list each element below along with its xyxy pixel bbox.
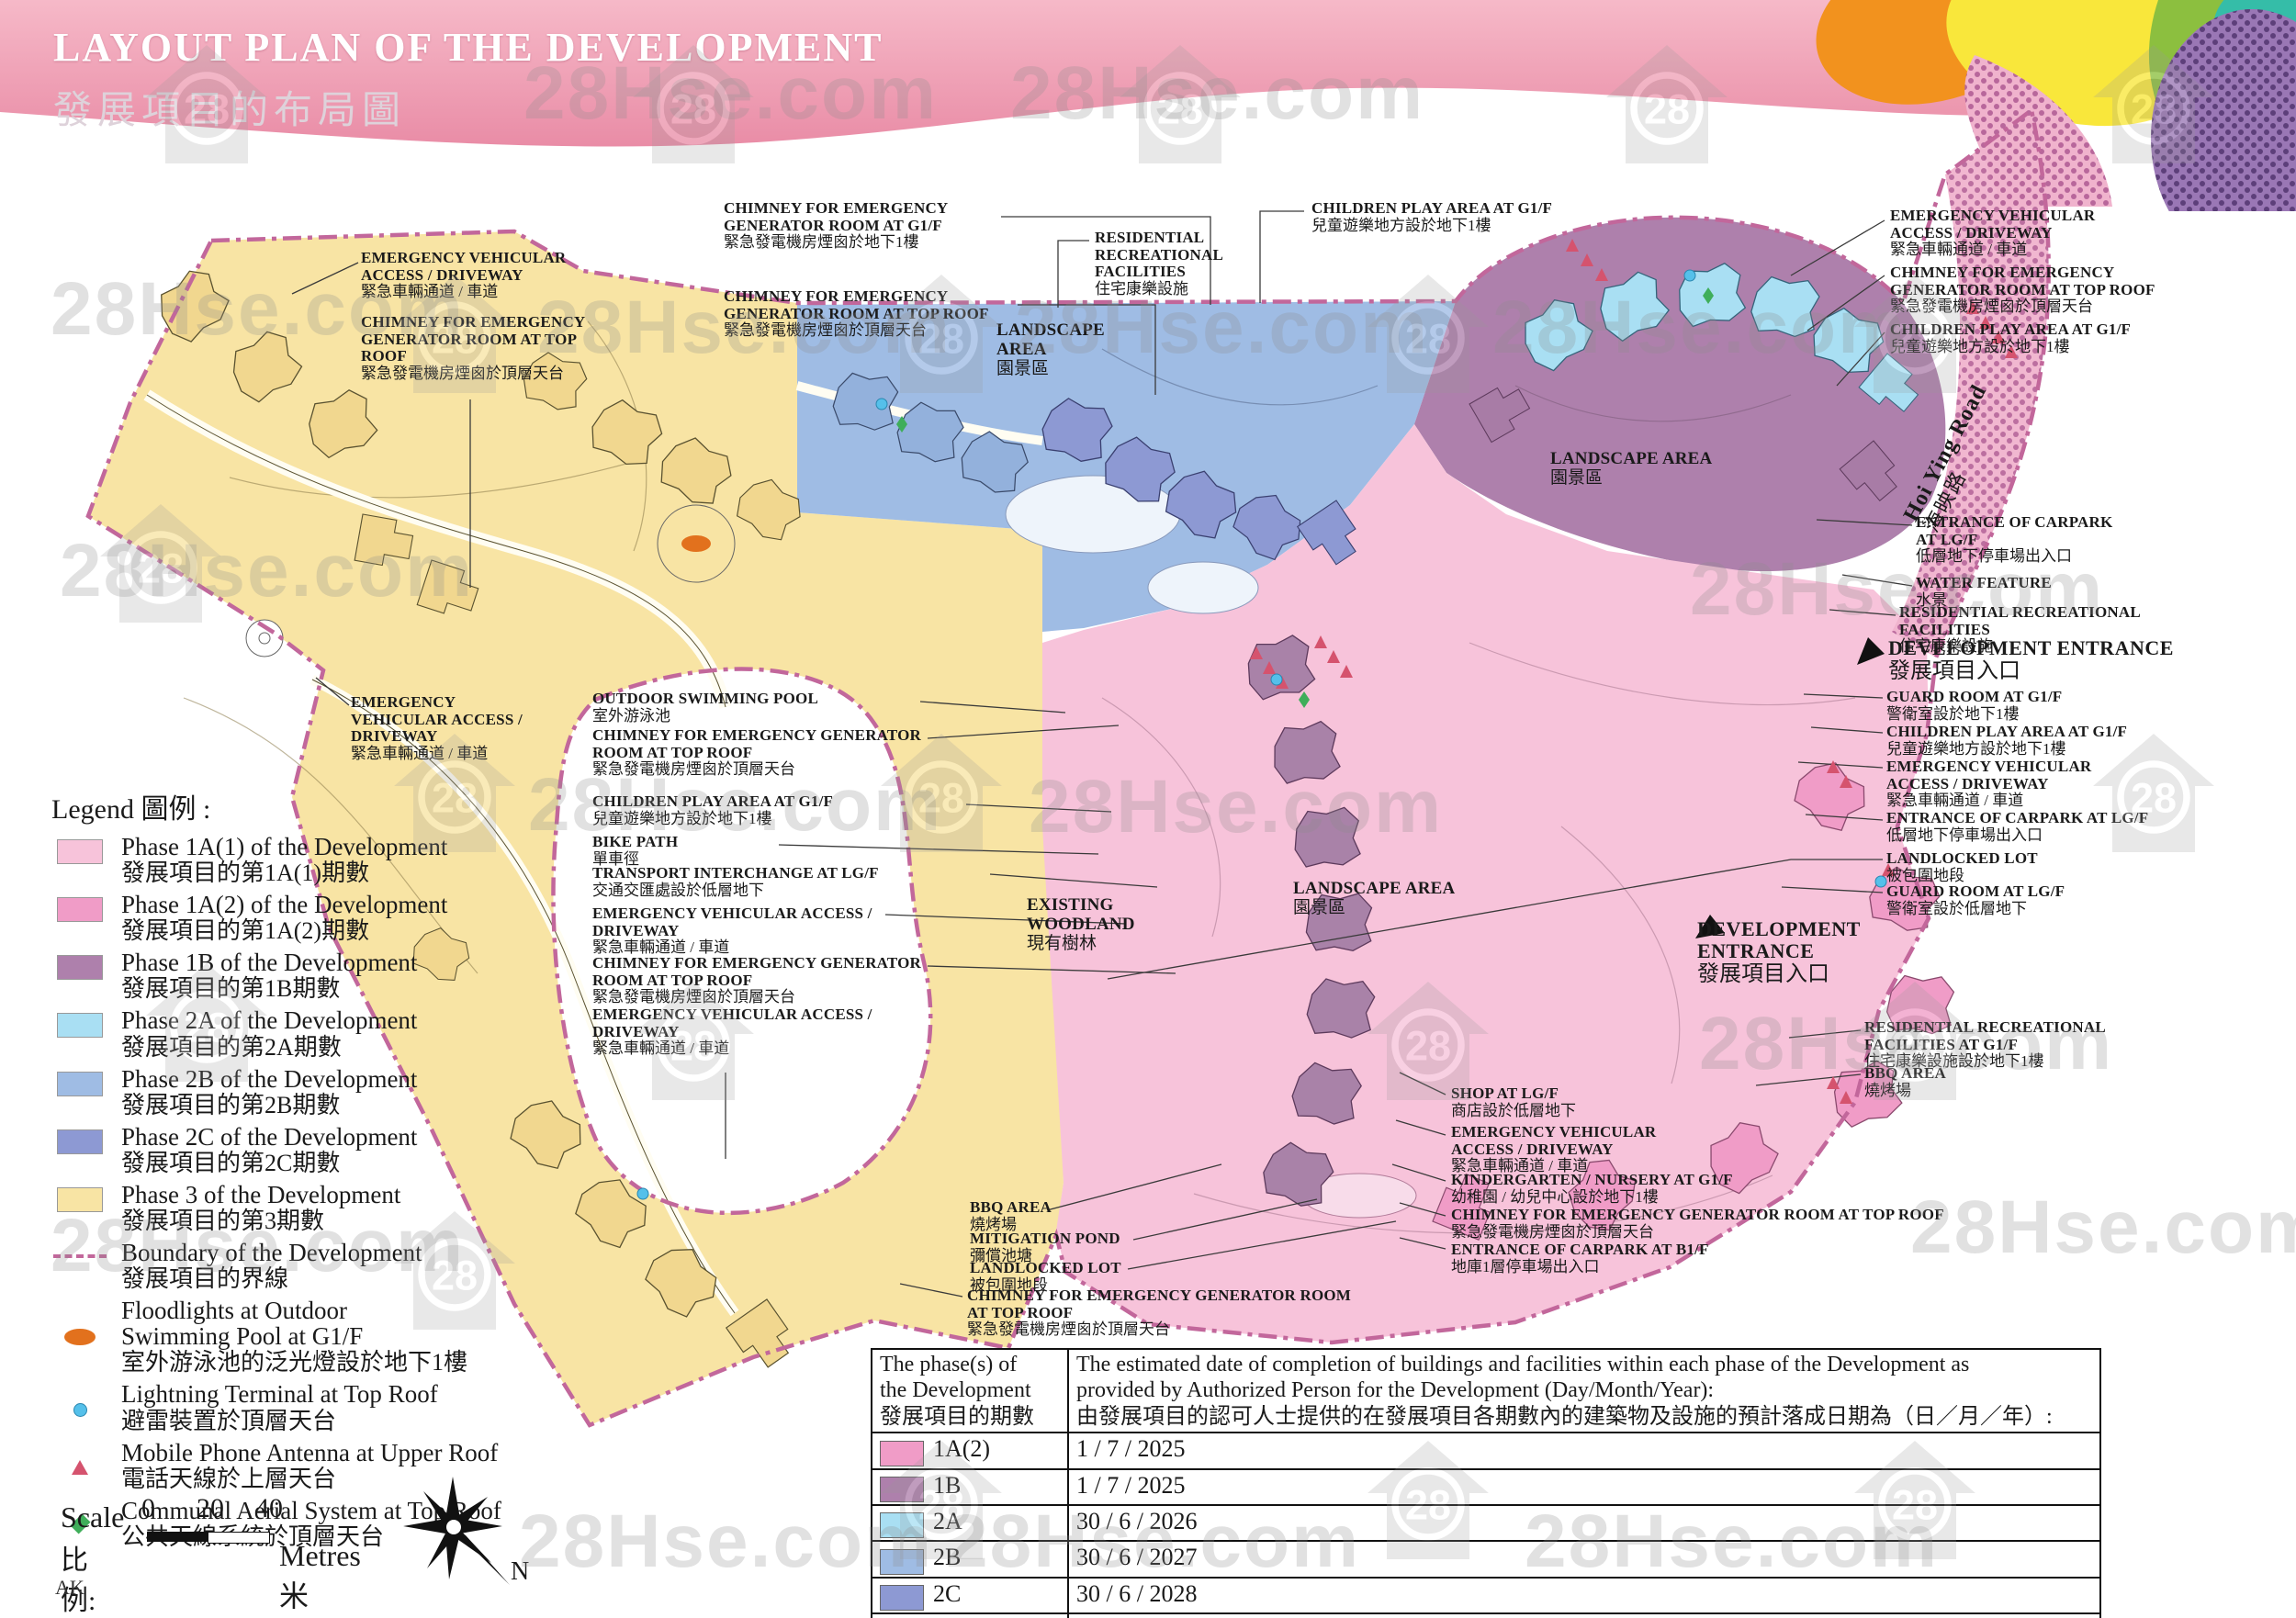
map-label-bbq-area: BBQ AREA燒烤場 bbox=[1864, 1065, 2048, 1099]
phase-2b-swatch bbox=[880, 1549, 924, 1575]
table-col2-header-en: The estimated date of completion of buil… bbox=[1076, 1352, 2092, 1404]
map-label-kindergarten: KINDERGARTEN / NURSERY AT G1/F幼稚園 / 幼兒中心… bbox=[1451, 1172, 1855, 1206]
map-label-outdoor-pool: OUTDOOR SWIMMING POOL室外游泳池 bbox=[592, 691, 923, 725]
map-label-res-rec: RESIDENTIAL RECREATIONAL FACILITIES住宅康樂設… bbox=[1095, 230, 1297, 298]
map-label-landlocked-lot: LANDLOCKED LOT被包圍地段 bbox=[1886, 850, 2125, 884]
floodlight-icon bbox=[64, 1329, 96, 1345]
map-label-chimney-top-roof: CHIMNEY FOR EMERGENCY GENERATOR ROOM AT … bbox=[592, 955, 923, 1006]
phase-1a2-swatch bbox=[880, 1441, 924, 1466]
scale-bar-filled bbox=[147, 1532, 208, 1542]
phase-1b-swatch bbox=[880, 1477, 924, 1502]
phase-2a-swatch bbox=[57, 1013, 103, 1038]
map-label-children-play: CHILDREN PLAY AREA AT G1/F兒童遊樂地方設於地下1樓 bbox=[1311, 200, 1615, 234]
phase-2c-swatch bbox=[880, 1585, 924, 1611]
map-label-children-play: CHILDREN PLAY AREA AT G1/F兒童遊樂地方設於地下1樓 bbox=[1886, 724, 2199, 758]
scale-label: Scale bbox=[61, 1500, 124, 1534]
table-row: 2B 30 / 6 / 2027 bbox=[872, 1541, 2100, 1577]
phase-1a2-swatch bbox=[57, 897, 103, 922]
legend-item-boundary: Boundary of the Development發展項目的界線 bbox=[51, 1240, 511, 1291]
completion-date-table: The phase(s) of the Development 發展項目的期數 … bbox=[871, 1348, 2101, 1618]
phase-2c-swatch bbox=[57, 1129, 103, 1154]
legend-item-phase-2c: Phase 2C of the Development發展項目的第2C期數 bbox=[51, 1124, 511, 1175]
legend-item-lightning: Lightning Terminal at Top Roof避雷裝置於頂層天台 bbox=[51, 1381, 511, 1433]
map-label-chimney-top-roof: CHIMNEY FOR EMERGENCY GENERATOR ROOM AT … bbox=[361, 314, 609, 383]
legend-item-phase-1b: Phase 1B of the Development發展項目的第1B期數 bbox=[51, 949, 511, 1001]
map-label-ev-access: EMERGENCY VEHICULAR ACCESS / DRIVEWAY緊急車… bbox=[351, 694, 535, 763]
map-label-guard-room-g1f: GUARD ROOM AT G1/F警衛室設於地下1樓 bbox=[1886, 689, 2162, 723]
scale-bar-empty bbox=[208, 1532, 270, 1544]
map-label-ev-access: EMERGENCY VEHICULAR ACCESS / DRIVEWAY緊急車… bbox=[1890, 208, 2120, 259]
map-label-bbq-area: BBQ AREA燒烤場 bbox=[970, 1199, 1126, 1233]
north-label: N bbox=[511, 1557, 529, 1587]
map-label-carpark-lgf: ENTRANCE OF CARPARK AT LG/F低層地下停車場出入口 bbox=[1916, 514, 2136, 566]
table-row: 1B 1 / 7 / 2025 bbox=[872, 1469, 2100, 1505]
table-row: 1A(2) 1 / 7 / 2025 bbox=[872, 1433, 2100, 1468]
lightning-terminal-icon bbox=[73, 1403, 87, 1417]
map-label-chimney-top-roof: CHIMNEY FOR EMERGENCY GENERATOR ROOM AT … bbox=[592, 727, 923, 779]
map-label-bike-path: BIKE PATH單車徑 bbox=[592, 834, 776, 868]
map-label-res-rec-g1f: RESIDENTIAL RECREATIONAL FACILITIES AT G… bbox=[1864, 1019, 2140, 1071]
map-label-ev-access: EMERGENCY VEHICULAR ACCESS / DRIVEWAY緊急車… bbox=[592, 905, 886, 957]
map-label-shop-lgf: SHOP AT LG/F商店設於低層地下 bbox=[1451, 1085, 1690, 1119]
map-label-dev-entrance: DEVELOPMENT ENTRANCE發展項目入口 bbox=[1697, 918, 1936, 987]
map-label-chimney-top-roof: CHIMNEY FOR EMERGENCY GENERATOR ROOM AT … bbox=[1451, 1207, 2020, 1241]
phase-2a-swatch bbox=[880, 1512, 924, 1538]
map-label-landscape-area: LANDSCAPE AREA園景區 bbox=[1293, 880, 1495, 918]
scale-tick-0: 0 bbox=[141, 1493, 155, 1524]
map-label-ev-access: EMERGENCY VEHICULAR ACCESS / DRIVEWAY緊急車… bbox=[1451, 1124, 1708, 1175]
table-col1-header: The phase(s) of the Development 發展項目的期數 bbox=[880, 1352, 1060, 1430]
scale-unit: Metres 米 bbox=[279, 1539, 361, 1615]
map-label-carpark-b1f: ENTRANCE OF CARPARK AT B1/F地庫1層停車場出入口 bbox=[1451, 1242, 1818, 1275]
phase-1b-swatch bbox=[57, 955, 103, 980]
north-compass-icon bbox=[396, 1471, 515, 1590]
legend-item-phase-2b: Phase 2B of the Development發展項目的第2B期數 bbox=[51, 1066, 511, 1118]
map-label-transport-interchange: TRANSPORT INTERCHANGE AT LG/F交通交匯處設於低層地下 bbox=[592, 865, 996, 899]
map-label-chimney-top-roof: CHIMNEY FOR EMERGENCY GENERATOR ROOM AT … bbox=[1890, 264, 2193, 316]
map-label-ev-access: EMERGENCY VEHICULAR ACCESS / DRIVEWAY緊急車… bbox=[592, 1006, 886, 1058]
legend-title: Legend 圖例 : bbox=[51, 786, 511, 826]
map-label-chimney-top-roof: CHIMNEY FOR EMERGENCY GENERATOR ROOM AT … bbox=[967, 1287, 1362, 1339]
legend: Legend 圖例 : Phase 1A(1) of the Developme… bbox=[51, 786, 511, 1556]
legend-item-phase-1a1: Phase 1A(1) of the Development發展項目的第1A(1… bbox=[51, 834, 511, 885]
layout-plan-page: LAYOUT PLAN OF THE DEVELOPMENT 發展項目的布局圖 … bbox=[0, 0, 2296, 1618]
map-label-carpark-lgf: ENTRANCE OF CARPARK AT LG/F低層地下停車場出入口 bbox=[1886, 810, 2272, 844]
map-label-children-play: CHILDREN PLAY AREA AT G1/F兒童遊樂地方設於地下1樓 bbox=[1890, 321, 2193, 355]
map-label-ev-access: EMERGENCY VEHICULAR ACCESS / DRIVEWAY緊急車… bbox=[1886, 758, 2125, 810]
plan-initials: AK bbox=[55, 1576, 84, 1600]
table-row: 2A 30 / 6 / 2026 bbox=[872, 1505, 2100, 1541]
phase-3-swatch bbox=[57, 1187, 103, 1212]
table-header-row: The phase(s) of the Development 發展項目的期數 … bbox=[872, 1349, 2100, 1433]
table-col2-header-zh: 由發展項目的認可人士提供的在發展項目各期數內的建築物及設施的預計落成日期為（日／… bbox=[1076, 1404, 2092, 1431]
mobile-antenna-icon bbox=[72, 1460, 88, 1475]
map-label-landscape-area: LANDSCAPE AREA園景區 bbox=[996, 321, 1125, 379]
map-label-ev-access: EMERGENCY VEHICULAR ACCESS / DRIVEWAY緊急車… bbox=[361, 250, 572, 301]
scale-tick-40: 40 bbox=[255, 1493, 283, 1524]
map-label-existing-woodland: EXISTING WOODLAND現有樹林 bbox=[1027, 896, 1192, 954]
phase-2b-swatch bbox=[57, 1072, 103, 1096]
legend-item-phase-1a2: Phase 1A(2) of the Development發展項目的第1A(2… bbox=[51, 892, 511, 943]
legend-item-phase-2a: Phase 2A of the Development發展項目的第2A期數 bbox=[51, 1007, 511, 1059]
boundary-line-icon bbox=[53, 1254, 107, 1258]
map-label-dev-entrance: DEVELOPMENT ENTRANCE發展項目入口 bbox=[1888, 637, 2256, 684]
legend-item-phase-3: Phase 3 of the Development發展項目的第3期數 bbox=[51, 1182, 511, 1233]
map-label-landscape-area: LANDSCAPE AREA園景區 bbox=[1550, 450, 1771, 489]
map-label-chimney-g1f: CHIMNEY FOR EMERGENCY GENERATOR ROOM AT … bbox=[724, 200, 999, 252]
table-row: 2C 30 / 6 / 2028 bbox=[872, 1578, 2100, 1613]
phase-1a1-swatch bbox=[57, 839, 103, 864]
scale-tick-20: 20 bbox=[197, 1493, 224, 1524]
map-label-guard-room-lgf: GUARD ROOM AT LG/F警衛室設於低層地下 bbox=[1886, 883, 2162, 917]
table-row: 3 28 / 6 / 2030 bbox=[872, 1613, 2100, 1618]
map-label-children-play: CHILDREN PLAY AREA AT G1/F兒童遊樂地方設於地下1樓 bbox=[592, 793, 969, 827]
legend-item-floodlights: Floodlights at Outdoor Swimming Pool at … bbox=[51, 1298, 511, 1375]
map-label-chimney-top-roof: CHIMNEY FOR EMERGENCY GENERATOR ROOM AT … bbox=[724, 288, 1018, 340]
